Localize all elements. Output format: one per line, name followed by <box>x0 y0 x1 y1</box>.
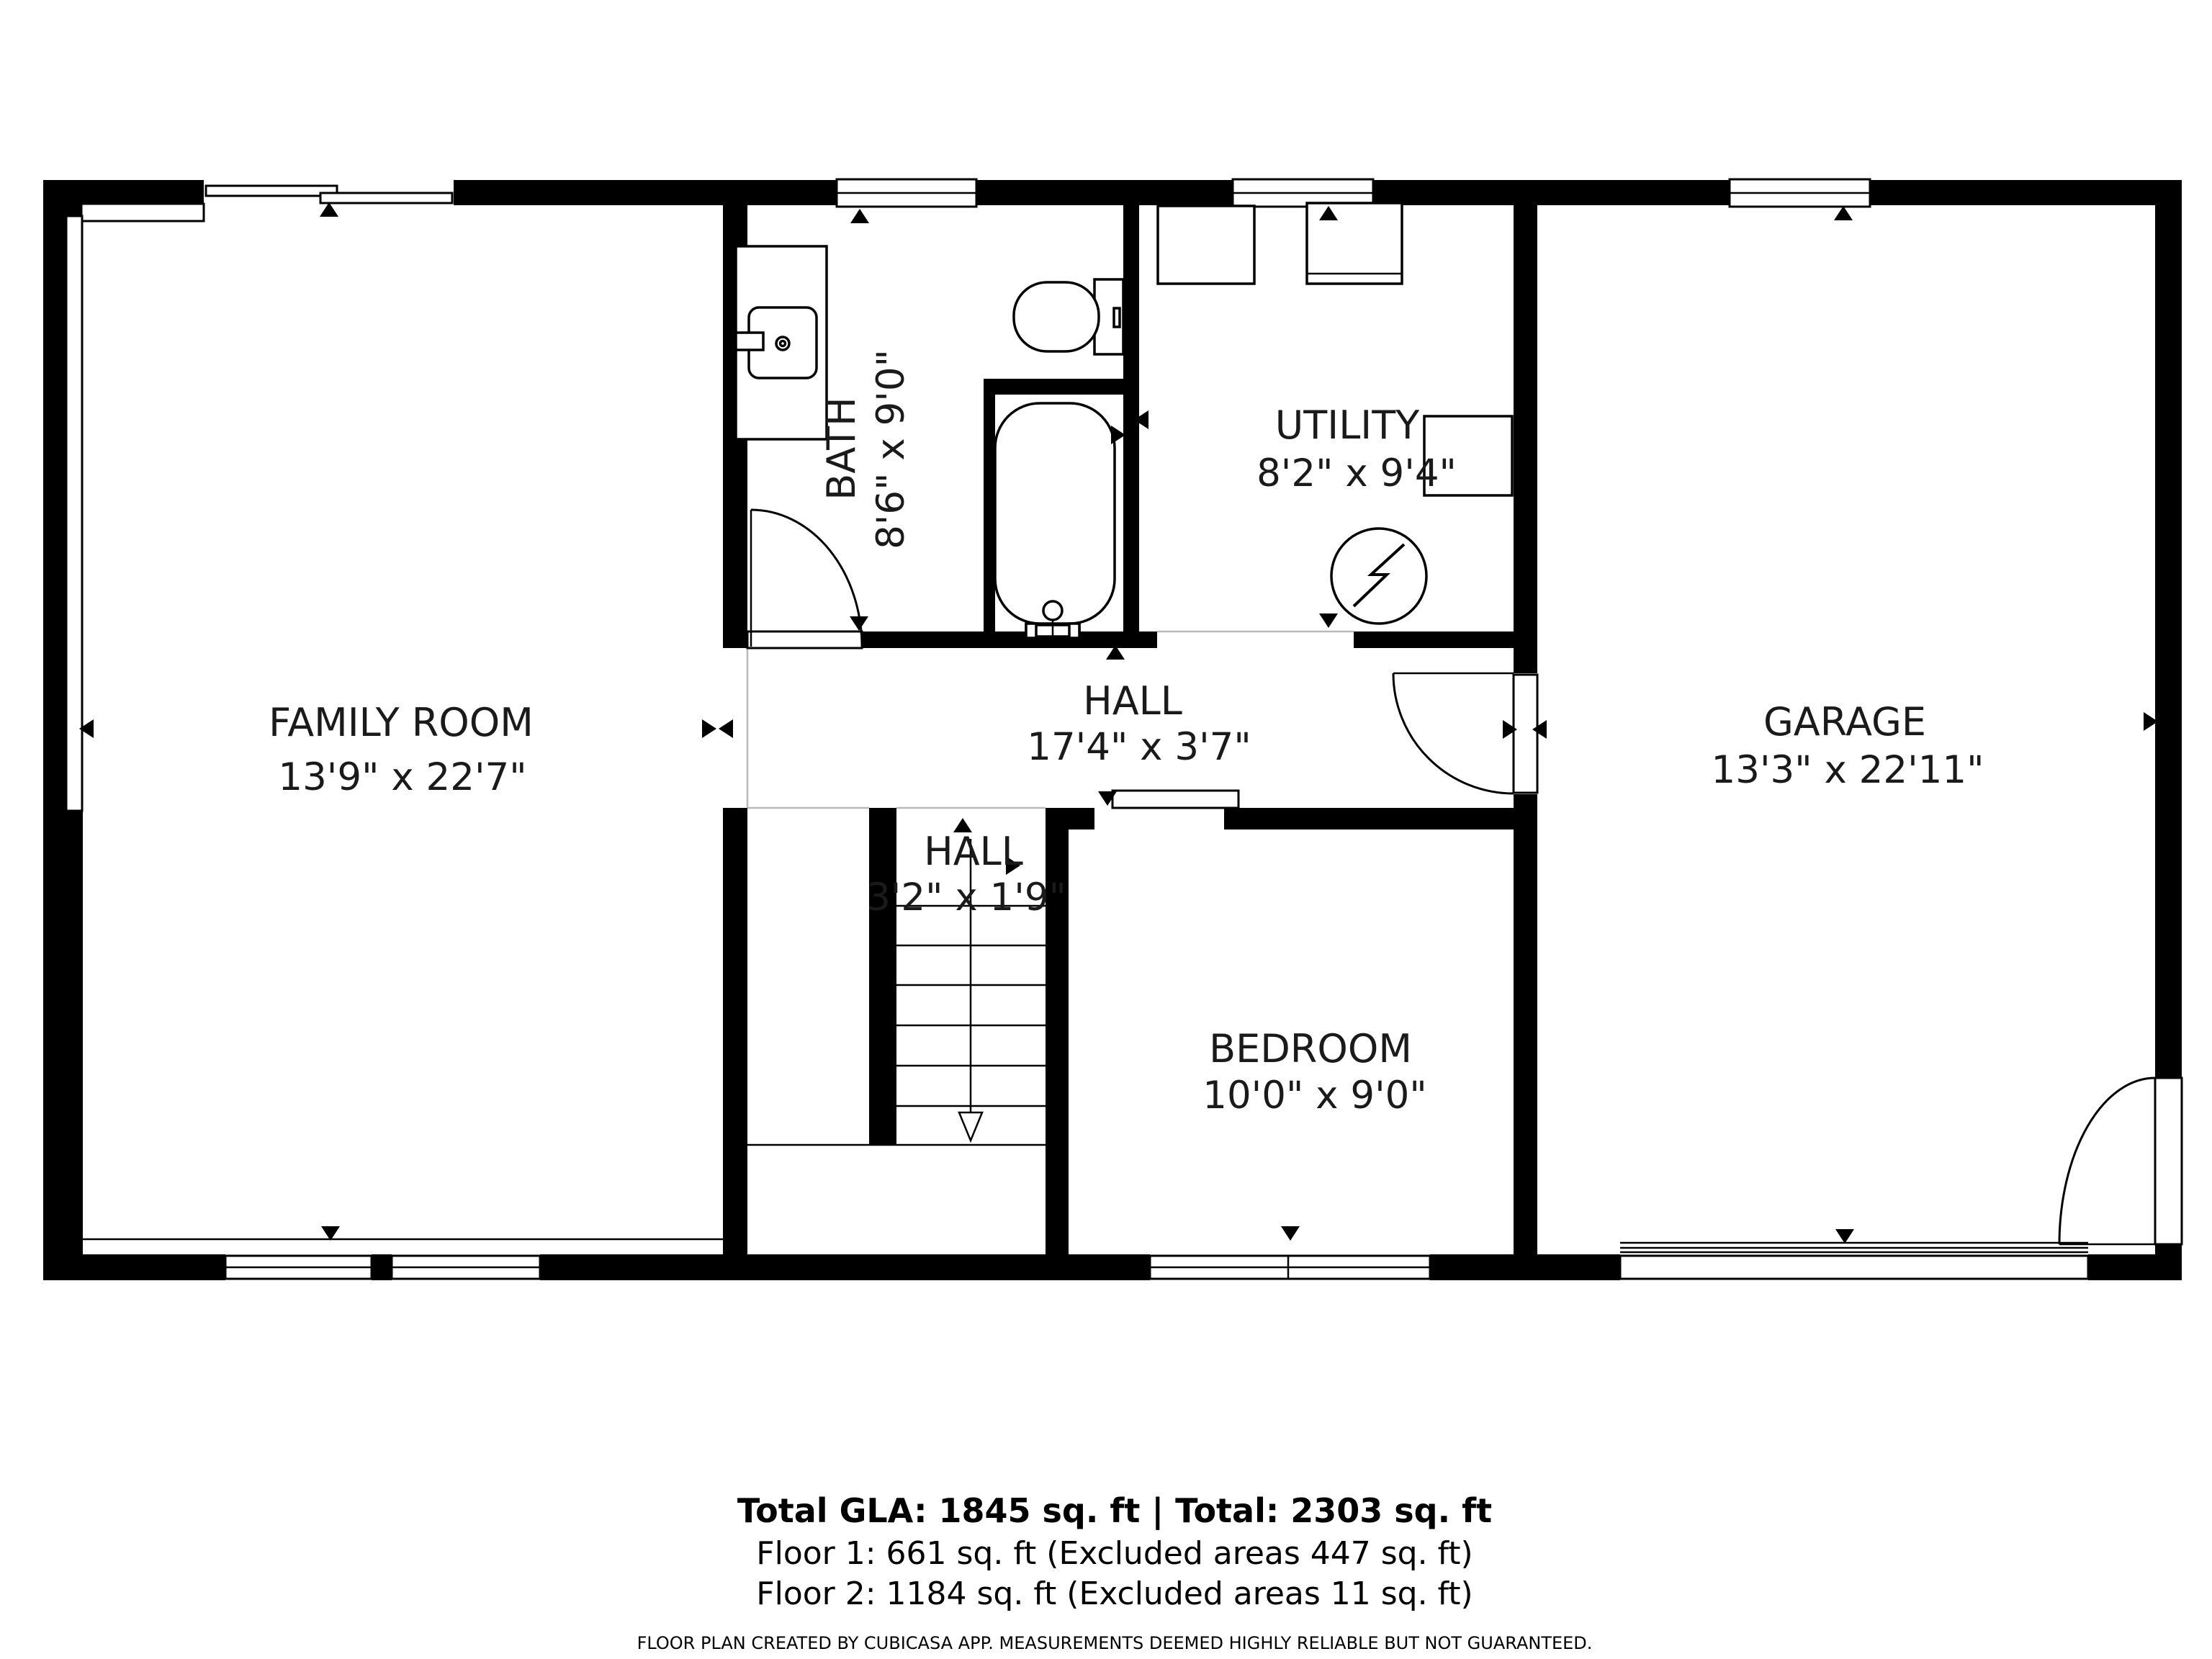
floor2-area-text: Floor 2: 1184 sq. ft (Excluded areas 11 … <box>756 1575 1473 1612</box>
room-label-garage: GARAGE <box>1763 699 1926 745</box>
left-wall-panel <box>66 216 82 811</box>
room-dims-utility: 8'2" x 9'4" <box>1256 451 1457 495</box>
toilet-icon <box>1014 279 1123 354</box>
dryer-icon <box>1307 203 1402 284</box>
room-dims-bath: 8'6" x 9'0" <box>869 349 913 549</box>
bedroom-door <box>1112 791 1238 808</box>
garage-door-arrow-icon <box>1835 1229 1854 1244</box>
room-dims-garage: 13'3" x 22'11" <box>1712 748 1984 792</box>
footer: Total GLA: 1845 sq. ft | Total: 2303 sq.… <box>637 1491 1593 1653</box>
room-dims-bedroom: 10'0" x 9'0" <box>1202 1074 1427 1118</box>
room-dims-family-room: 13'9" x 22'7" <box>278 755 526 799</box>
sink-vanity-icon <box>736 246 827 439</box>
room-label-bath: BATH <box>819 397 864 500</box>
family-room-bottom-window <box>225 1254 540 1280</box>
family-room-top-window <box>206 186 452 203</box>
window-arrow-icon <box>1834 206 1853 220</box>
bath-door <box>747 510 862 648</box>
bedroom-window <box>1150 1256 1430 1279</box>
door-arrow-icon <box>850 616 868 631</box>
washer-icon <box>1158 206 1254 284</box>
stairs-down-arrow <box>959 1112 982 1141</box>
bath-window <box>837 179 976 207</box>
floor1-area-text: Floor 1: 661 sq. ft (Excluded areas 447 … <box>756 1535 1473 1572</box>
opening-arrow-icon <box>719 719 733 738</box>
garage-door <box>1620 1243 2088 1279</box>
room-dims-hall-small: 3'2" x 1'9" <box>866 876 1066 920</box>
window-arrow-icon <box>1281 1226 1300 1241</box>
garage-window <box>1730 179 1870 207</box>
garage-hall-door <box>1393 673 1537 793</box>
floor-plan-page: FAMILY ROOM 13'9" x 22'7" BATH 8'6" x 9'… <box>0 0 2212 1659</box>
room-label-family-room: FAMILY ROOM <box>269 700 534 745</box>
disclaimer-text: FLOOR PLAN CREATED BY CUBICASA APP. MEAS… <box>637 1633 1593 1653</box>
electrical-panel-icon <box>1331 529 1426 624</box>
room-label-utility: UTILITY <box>1275 403 1420 448</box>
total-area-text: Total GLA: 1845 sq. ft | Total: 2303 sq.… <box>737 1491 1492 1531</box>
garage-side-door <box>2059 1078 2182 1244</box>
room-label-hall: HALL <box>1083 678 1182 724</box>
window-arrow-icon <box>320 202 338 217</box>
floor-plan-canvas: FAMILY ROOM 13'9" x 22'7" BATH 8'6" x 9'… <box>0 0 2212 1659</box>
room-dims-hall: 17'4" x 3'7" <box>1027 725 1251 769</box>
bath-fixtures <box>736 246 1123 638</box>
window-arrow-icon <box>850 209 869 223</box>
opening-arrow-icon <box>702 719 716 738</box>
wall-step <box>81 204 204 221</box>
door-arrow-icon <box>1319 613 1338 628</box>
room-label-hall-small: HALL <box>924 829 1023 874</box>
bathtub-icon <box>995 403 1115 638</box>
room-label-bedroom: BEDROOM <box>1209 1026 1412 1071</box>
